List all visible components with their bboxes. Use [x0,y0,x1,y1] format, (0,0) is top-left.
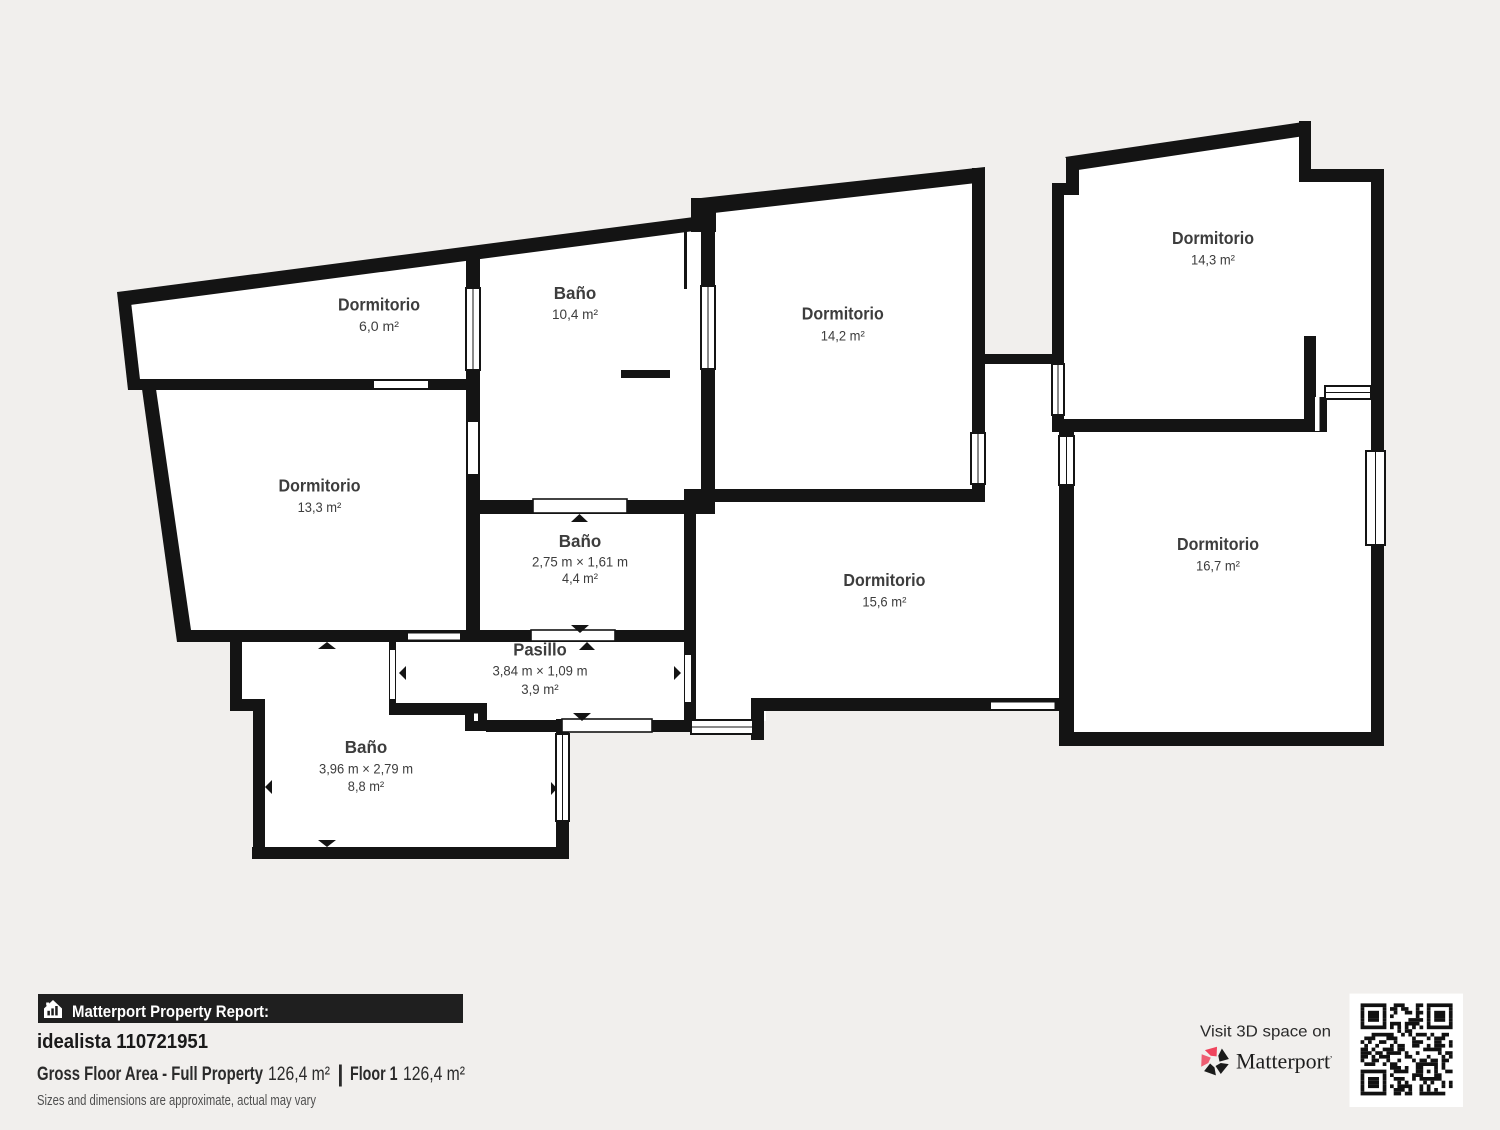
svg-text:3,9 m²: 3,9 m² [521,682,559,697]
svg-text:Floor 1: Floor 1 [350,1064,398,1085]
svg-text:2,75 m × 1,61 m: 2,75 m × 1,61 m [532,555,628,570]
svg-text:13,3 m²: 13,3 m² [298,500,342,515]
svg-text:Baño: Baño [554,283,597,303]
svg-text:8,8 m²: 8,8 m² [348,779,385,794]
svg-text:Dormitorio: Dormitorio [338,295,420,315]
svg-text:Dormitorio: Dormitorio [1172,228,1254,248]
svg-text:126,4 m²: 126,4 m² [403,1064,465,1085]
svg-text:Dormitorio: Dormitorio [843,570,925,590]
svg-text:Sizes and dimensions are appro: Sizes and dimensions are approximate, ac… [37,1093,317,1109]
svg-text:Baño: Baño [559,531,602,551]
svg-text:16,7 m²: 16,7 m² [1196,558,1240,573]
svg-text:Dormitorio: Dormitorio [279,476,361,496]
svg-text:Baño: Baño [345,737,388,757]
svg-text:idealista 110721951: idealista 110721951 [37,1031,208,1053]
svg-text:Gross Floor Area - Full Proper: Gross Floor Area - Full Property [37,1064,263,1085]
svg-text:6,0 m²: 6,0 m² [359,319,399,334]
svg-text:14,2 m²: 14,2 m² [821,328,865,343]
svg-text:10,4 m²: 10,4 m² [552,307,598,322]
svg-text:,: , [1330,1049,1332,1059]
svg-text:Dormitorio: Dormitorio [1177,534,1259,554]
svg-text:Matterport Property Report:: Matterport Property Report: [72,1002,269,1021]
svg-text:15,6 m²: 15,6 m² [862,594,906,609]
svg-text:Matterport: Matterport [1236,1049,1330,1074]
svg-text:3,84 m × 1,09 m: 3,84 m × 1,09 m [493,664,588,679]
svg-text:3,96 m × 2,79 m: 3,96 m × 2,79 m [319,762,413,777]
svg-text:Visit 3D space on: Visit 3D space on [1200,1024,1331,1041]
svg-text:Pasillo: Pasillo [513,640,567,660]
svg-text:4,4 m²: 4,4 m² [562,571,598,586]
svg-text:126,4 m²: 126,4 m² [268,1064,330,1085]
svg-text:14,3 m²: 14,3 m² [1191,252,1235,267]
svg-text:Dormitorio: Dormitorio [802,304,884,324]
